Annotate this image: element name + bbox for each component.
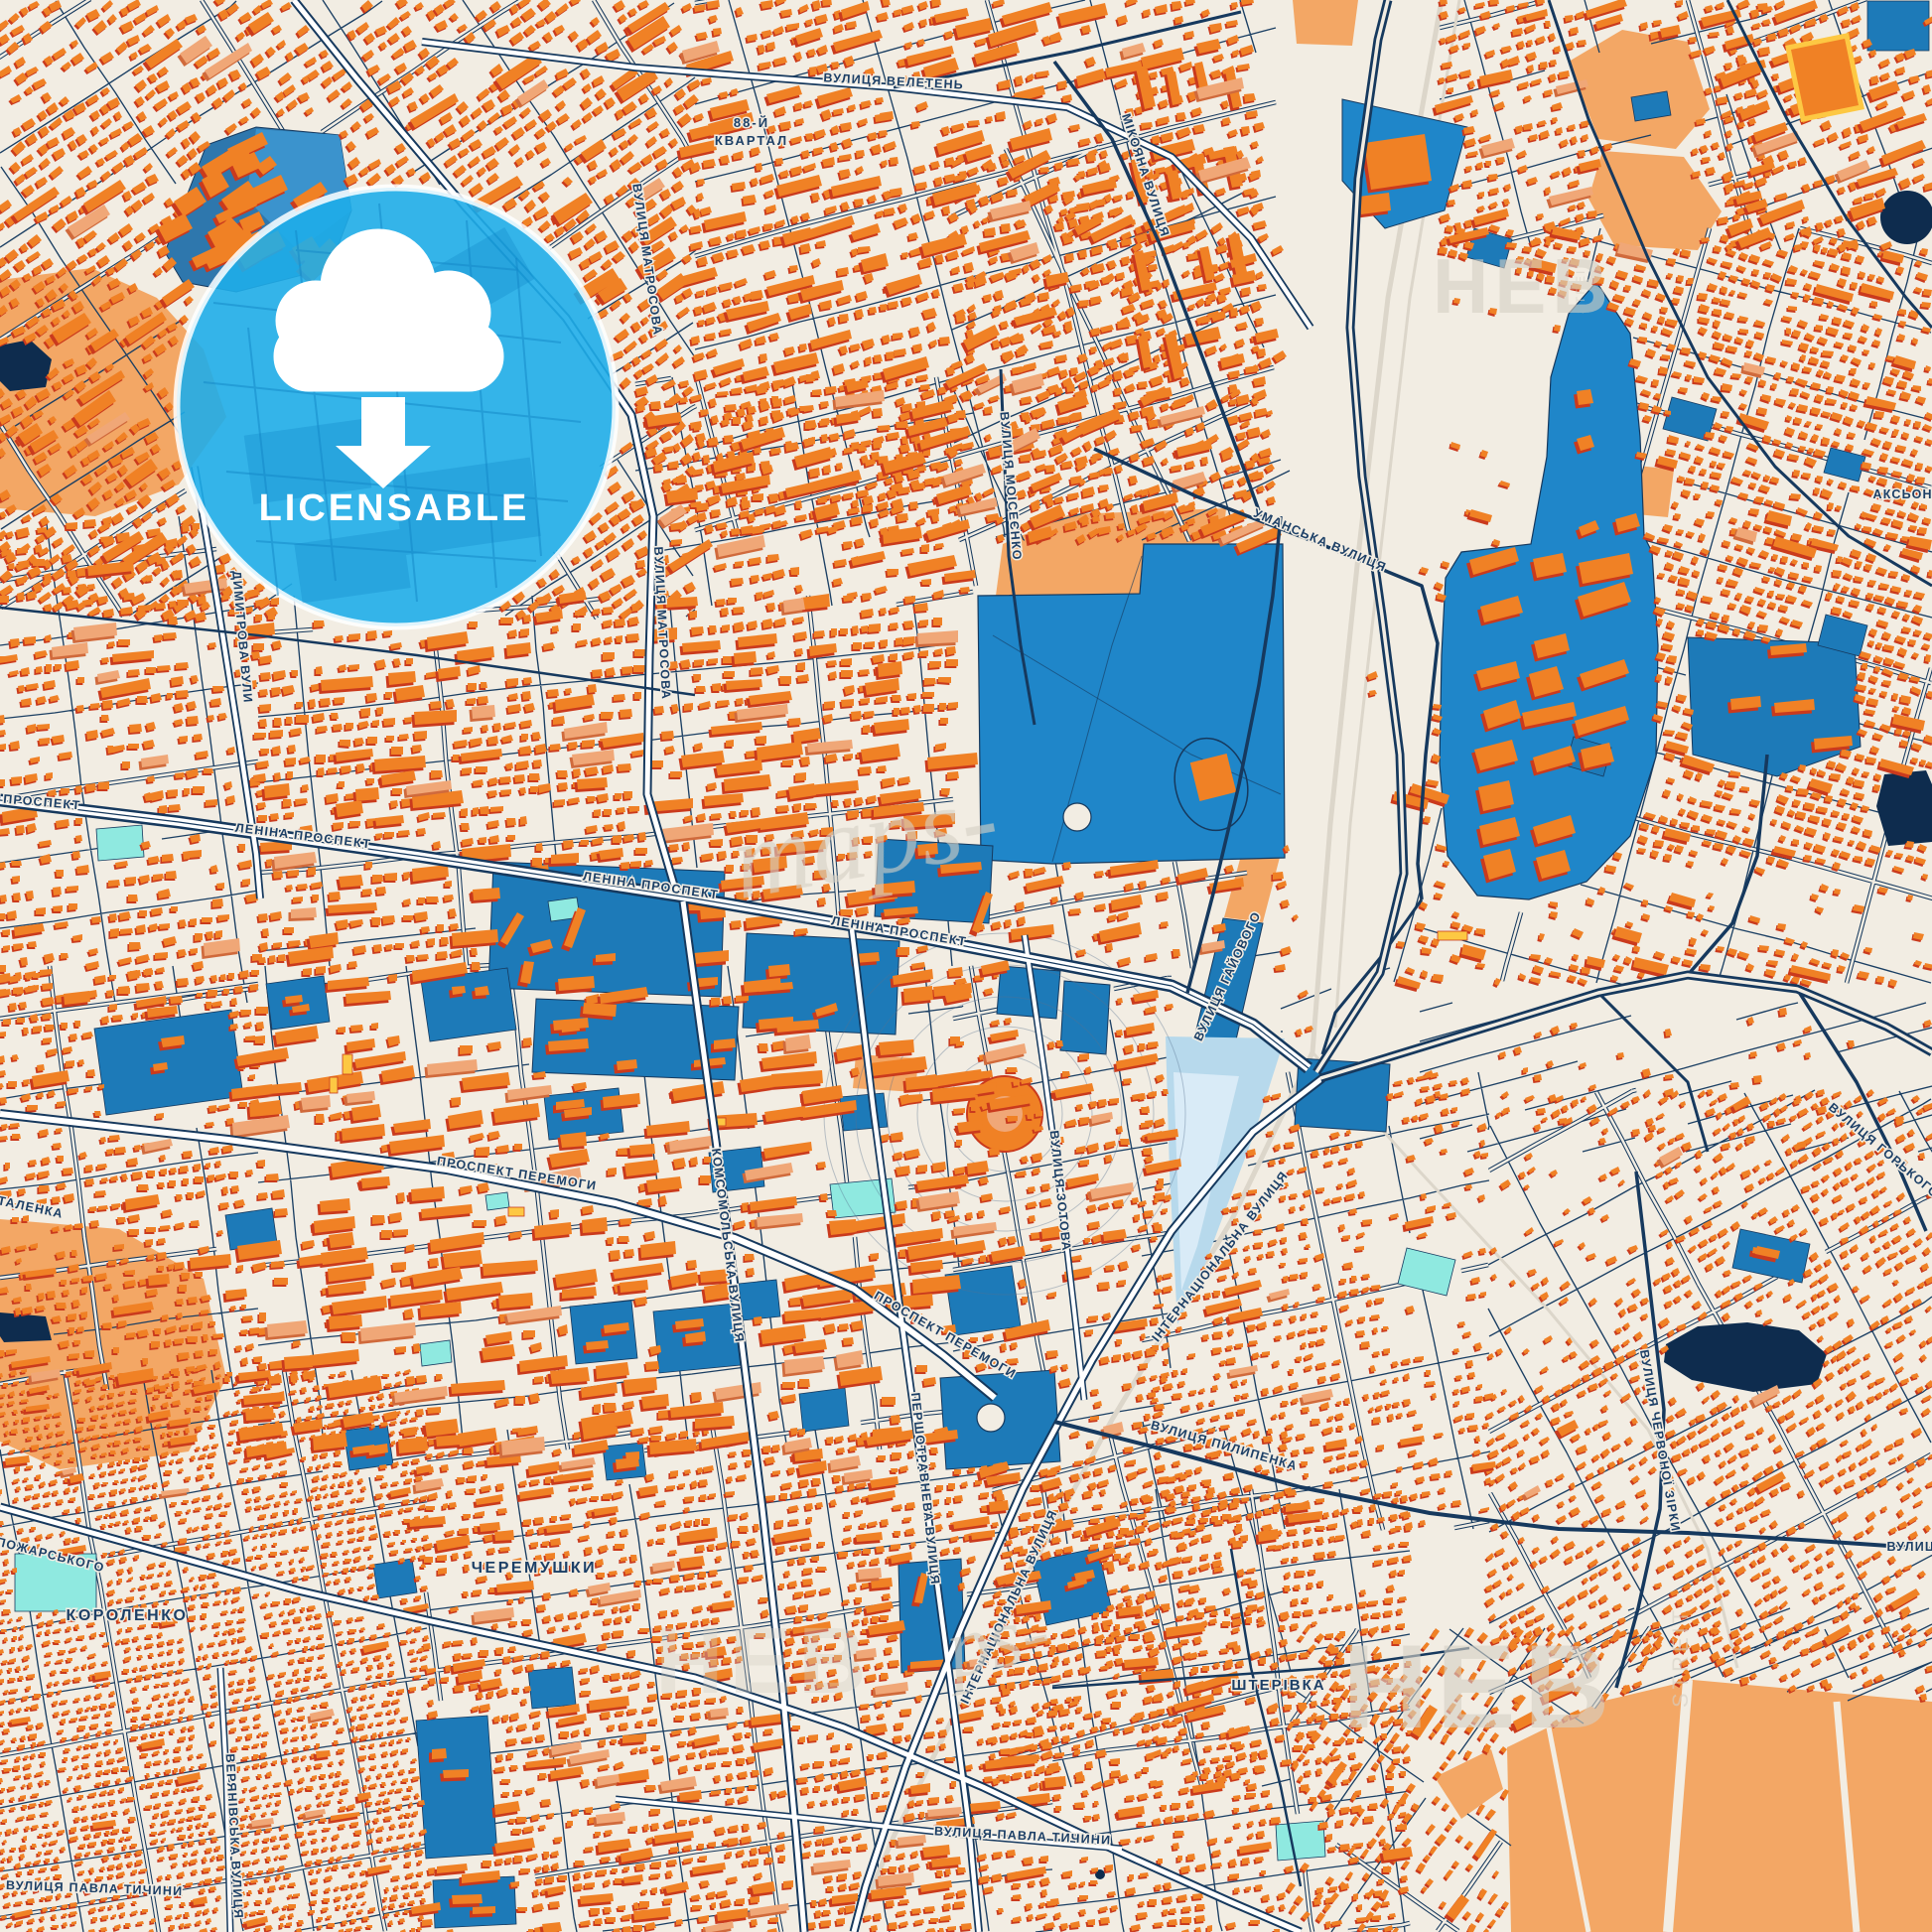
svg-text:КОРОЛЕНКО: КОРОЛЕНКО [67, 1607, 189, 1624]
svg-text:ВУЛИЦЯ: ВУЛИЦЯ [1887, 1540, 1932, 1554]
svg-text:LICENSABLE: LICENSABLE [259, 487, 530, 529]
svg-text:ЧЕРЕМУШКИ: ЧЕРЕМУШКИ [472, 1560, 597, 1577]
svg-text:HEB: HEB [1342, 1620, 1617, 1753]
svg-text:STREIT: STREIT [1668, 1606, 1693, 1708]
svg-text:88-Й: 88-Й [734, 115, 769, 130]
svg-text:ШТЕРІВКА: ШТЕРІВКА [1231, 1677, 1325, 1694]
svg-text:КВАРТАЛ: КВАРТАЛ [715, 133, 788, 148]
svg-text:АКСЬОНОВА: АКСЬОНОВА [1872, 487, 1932, 501]
svg-text:STREIT: STREIT [1574, 259, 1587, 314]
svg-text:HEB: HEB [655, 1608, 873, 1714]
